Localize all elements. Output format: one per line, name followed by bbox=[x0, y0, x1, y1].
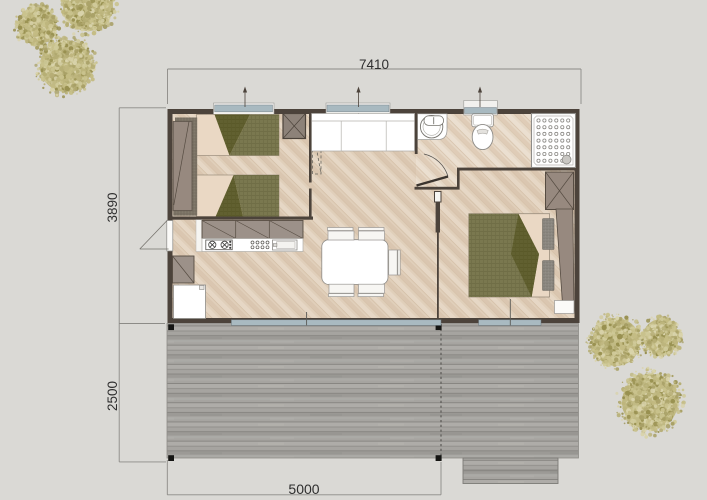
svg-text:3890: 3890 bbox=[105, 192, 120, 222]
svg-text:2500: 2500 bbox=[105, 381, 120, 411]
svg-text:5000: 5000 bbox=[288, 481, 319, 497]
svg-text:7410: 7410 bbox=[359, 57, 389, 72]
